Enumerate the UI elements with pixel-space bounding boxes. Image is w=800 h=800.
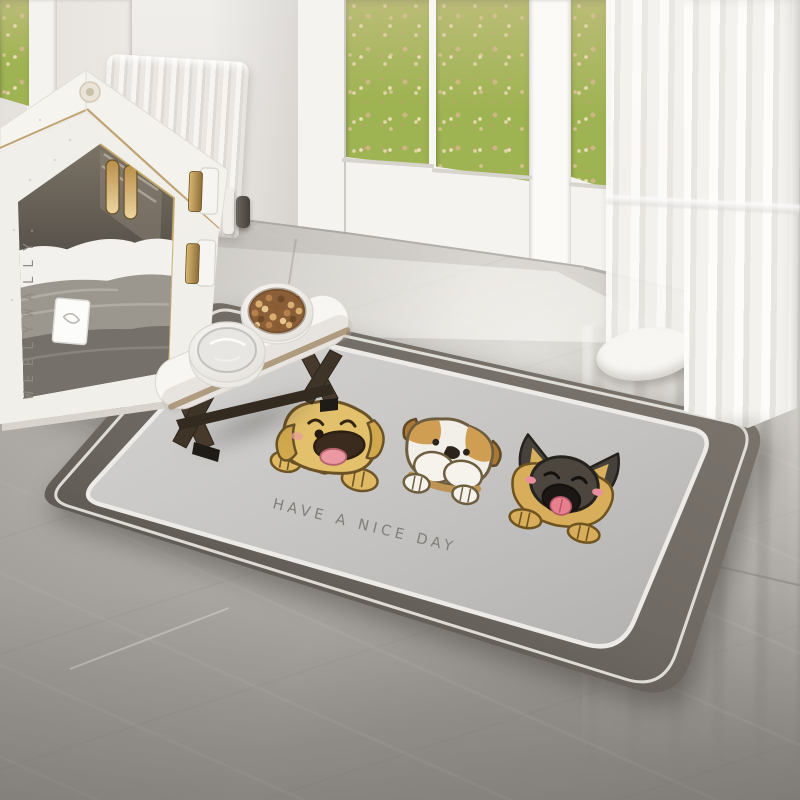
room-scene: HAVE A NICE DAY (0, 0, 800, 800)
door-glass-pane-right (436, 0, 529, 181)
door-glass-pane-left (346, 0, 429, 167)
doghouse-oval-slot (124, 165, 137, 219)
blanket-tag (52, 298, 90, 345)
doghouse-hinge (188, 167, 219, 214)
doghouse-brand-text: WEELYWALLY. (22, 218, 37, 399)
elevated-pet-feeder (130, 262, 370, 467)
sheer-curtain-right-panel (684, 0, 800, 428)
door-mullion (429, 0, 436, 172)
curtain-hem-shadow (688, 416, 800, 432)
door-center-post (529, 0, 571, 278)
doghouse-oval-slot (106, 160, 119, 214)
side-window-pane (571, 0, 611, 190)
water-bowl (189, 322, 265, 388)
